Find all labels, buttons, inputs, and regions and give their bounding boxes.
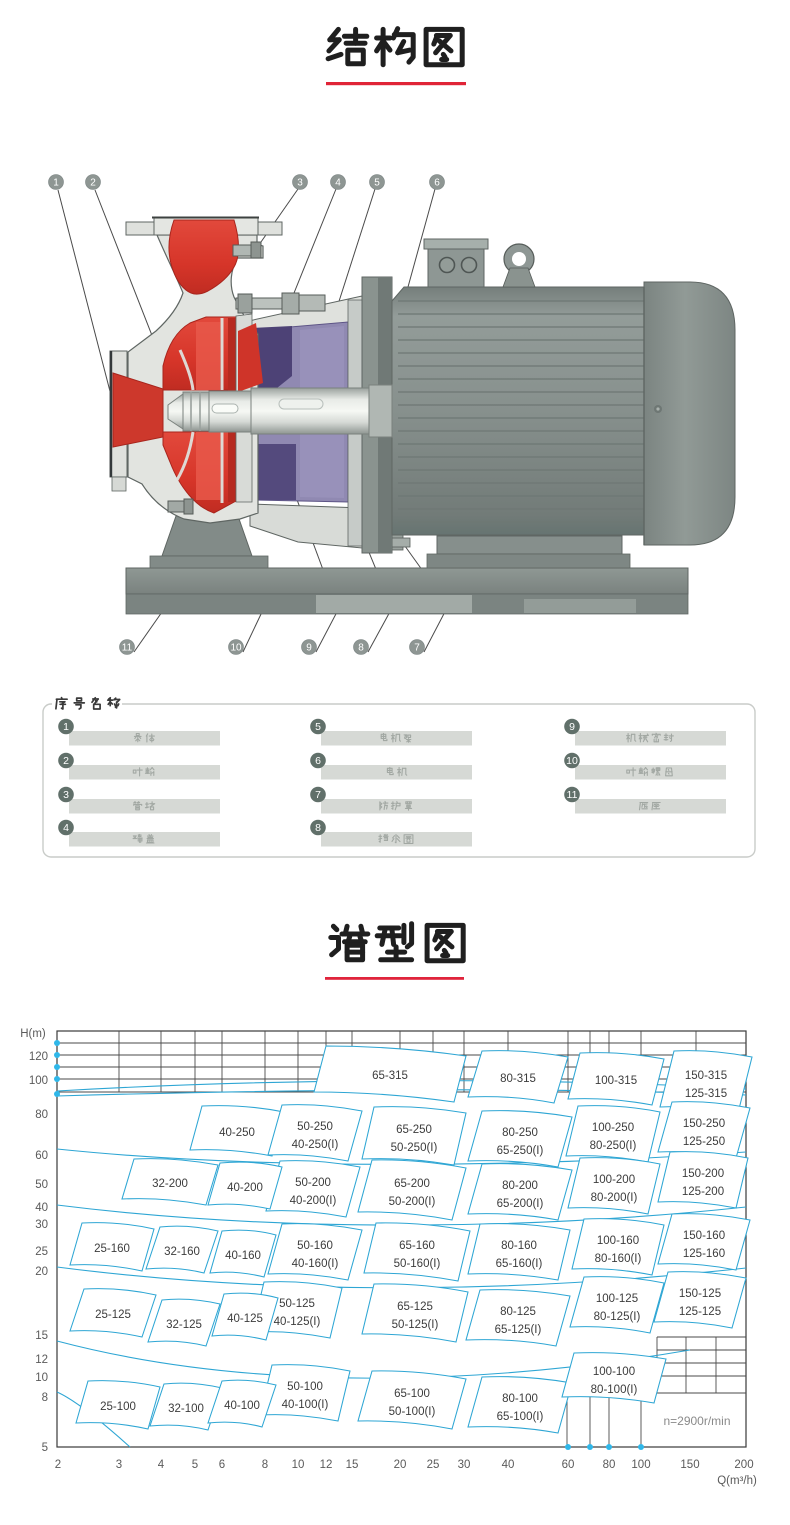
svg-text:40: 40 — [502, 1459, 515, 1471]
svg-text:8: 8 — [262, 1459, 268, 1471]
svg-text:2: 2 — [90, 177, 96, 188]
svg-text:40-250(I): 40-250(I) — [292, 1139, 339, 1151]
svg-text:80-125(I): 80-125(I) — [594, 1311, 641, 1323]
svg-text:25-100: 25-100 — [100, 1401, 136, 1413]
svg-text:60: 60 — [562, 1459, 575, 1471]
svg-text:150-250: 150-250 — [683, 1118, 725, 1130]
svg-text:50-200: 50-200 — [295, 1177, 331, 1189]
svg-text:80-250(I): 80-250(I) — [590, 1140, 637, 1152]
svg-text:80-160: 80-160 — [501, 1240, 537, 1252]
svg-text:10: 10 — [230, 642, 242, 653]
svg-text:40-125: 40-125 — [227, 1313, 263, 1325]
svg-text:8: 8 — [42, 1392, 48, 1404]
svg-text:50-160(I): 50-160(I) — [394, 1258, 441, 1270]
svg-text:50-100: 50-100 — [287, 1381, 323, 1393]
svg-text:100: 100 — [631, 1459, 650, 1471]
svg-text:n=2900r/min: n=2900r/min — [663, 1414, 730, 1428]
svg-text:20: 20 — [394, 1459, 407, 1471]
svg-text:25-160: 25-160 — [94, 1243, 130, 1255]
svg-text:25: 25 — [35, 1246, 48, 1258]
svg-text:125-160: 125-160 — [683, 1248, 725, 1260]
svg-text:6: 6 — [315, 755, 321, 767]
svg-text:1: 1 — [63, 721, 69, 733]
svg-text:50-250(I): 50-250(I) — [391, 1142, 438, 1154]
svg-text:125-315: 125-315 — [685, 1088, 727, 1100]
svg-text:65-200: 65-200 — [394, 1178, 430, 1190]
svg-text:50-125: 50-125 — [279, 1298, 315, 1310]
svg-text:80-315: 80-315 — [500, 1073, 536, 1085]
svg-text:32-125: 32-125 — [166, 1319, 202, 1331]
svg-text:40-160: 40-160 — [225, 1250, 261, 1262]
svg-text:25: 25 — [427, 1459, 440, 1471]
svg-text:50-200(I): 50-200(I) — [389, 1196, 436, 1208]
svg-text:12: 12 — [320, 1459, 333, 1471]
svg-text:12: 12 — [35, 1354, 48, 1366]
svg-text:3: 3 — [116, 1459, 122, 1471]
svg-text:200: 200 — [734, 1459, 753, 1471]
svg-text:40-200(I): 40-200(I) — [290, 1195, 337, 1207]
svg-text:3: 3 — [63, 789, 69, 801]
svg-text:Q(m³/h): Q(m³/h) — [717, 1475, 757, 1487]
svg-text:100-125: 100-125 — [596, 1293, 638, 1305]
svg-text:6: 6 — [434, 177, 440, 188]
svg-text:150-160: 150-160 — [683, 1230, 725, 1242]
svg-text:30: 30 — [458, 1459, 471, 1471]
svg-text:40-125(I): 40-125(I) — [274, 1316, 321, 1328]
svg-text:125-125: 125-125 — [679, 1306, 721, 1318]
svg-text:65-250(I): 65-250(I) — [497, 1145, 544, 1157]
svg-text:40: 40 — [35, 1202, 48, 1214]
svg-text:80: 80 — [35, 1109, 48, 1121]
svg-text:125-250: 125-250 — [683, 1136, 725, 1148]
svg-text:40-250: 40-250 — [219, 1127, 255, 1139]
svg-text:4: 4 — [63, 822, 69, 834]
svg-text:40-200: 40-200 — [227, 1182, 263, 1194]
svg-text:100-100: 100-100 — [593, 1366, 635, 1378]
svg-text:100-315: 100-315 — [595, 1075, 637, 1087]
svg-text:2: 2 — [63, 755, 69, 767]
svg-text:50-125(I): 50-125(I) — [392, 1319, 439, 1331]
svg-text:4: 4 — [335, 177, 341, 188]
svg-text:5: 5 — [192, 1459, 198, 1471]
svg-text:32-100: 32-100 — [168, 1403, 204, 1415]
svg-text:60: 60 — [35, 1150, 48, 1162]
svg-text:11: 11 — [567, 789, 578, 801]
svg-text:8: 8 — [315, 822, 321, 834]
svg-text:5: 5 — [374, 177, 380, 188]
svg-text:50: 50 — [35, 1179, 48, 1191]
svg-text:25-125: 25-125 — [95, 1309, 131, 1321]
svg-text:150-200: 150-200 — [682, 1168, 724, 1180]
svg-text:32-200: 32-200 — [152, 1178, 188, 1190]
svg-text:80-200: 80-200 — [502, 1180, 538, 1192]
svg-text:80: 80 — [603, 1459, 616, 1471]
svg-text:65-125: 65-125 — [397, 1301, 433, 1313]
svg-text:9: 9 — [569, 721, 575, 733]
svg-text:100-250: 100-250 — [592, 1122, 634, 1134]
svg-text:15: 15 — [35, 1330, 48, 1342]
svg-text:125-200: 125-200 — [682, 1186, 724, 1198]
svg-text:10: 10 — [292, 1459, 305, 1471]
svg-text:8: 8 — [358, 642, 364, 653]
svg-text:11: 11 — [122, 642, 133, 653]
svg-text:40-100: 40-100 — [224, 1400, 260, 1412]
svg-text:15: 15 — [346, 1459, 359, 1471]
svg-text:150-125: 150-125 — [679, 1288, 721, 1300]
svg-text:1: 1 — [53, 177, 59, 188]
svg-text:80-250: 80-250 — [502, 1127, 538, 1139]
svg-text:80-125: 80-125 — [500, 1306, 536, 1318]
svg-text:50-100(I): 50-100(I) — [389, 1406, 436, 1418]
svg-text:30: 30 — [35, 1219, 48, 1231]
svg-text:120: 120 — [29, 1051, 48, 1063]
svg-text:50-160: 50-160 — [297, 1240, 333, 1252]
svg-text:10: 10 — [35, 1372, 48, 1384]
svg-text:2: 2 — [55, 1459, 61, 1471]
svg-text:40-100(I): 40-100(I) — [282, 1399, 329, 1411]
svg-text:32-160: 32-160 — [164, 1246, 200, 1258]
svg-text:65-160: 65-160 — [399, 1240, 435, 1252]
svg-text:80-200(I): 80-200(I) — [591, 1192, 638, 1204]
svg-text:65-315: 65-315 — [372, 1070, 408, 1082]
svg-text:3: 3 — [297, 177, 303, 188]
svg-text:H(m): H(m) — [20, 1028, 46, 1040]
svg-text:40-160(I): 40-160(I) — [292, 1258, 339, 1270]
svg-text:10: 10 — [566, 755, 578, 767]
svg-text:20: 20 — [35, 1266, 48, 1278]
svg-text:9: 9 — [306, 642, 312, 653]
svg-text:65-100(I): 65-100(I) — [497, 1411, 544, 1423]
svg-text:65-200(I): 65-200(I) — [497, 1198, 544, 1210]
svg-text:65-250: 65-250 — [396, 1124, 432, 1136]
svg-text:50-250: 50-250 — [297, 1121, 333, 1133]
svg-text:7: 7 — [315, 789, 321, 801]
svg-text:150: 150 — [680, 1459, 699, 1471]
svg-text:80-160(I): 80-160(I) — [595, 1253, 642, 1265]
svg-text:150-315: 150-315 — [685, 1070, 727, 1082]
svg-text:4: 4 — [158, 1459, 165, 1471]
svg-text:6: 6 — [219, 1459, 225, 1471]
svg-text:5: 5 — [315, 721, 321, 733]
svg-text:100-200: 100-200 — [593, 1174, 635, 1186]
svg-text:5: 5 — [42, 1442, 48, 1454]
svg-text:7: 7 — [414, 642, 420, 653]
svg-text:80-100(I): 80-100(I) — [591, 1384, 638, 1396]
svg-text:65-100: 65-100 — [394, 1388, 430, 1400]
svg-text:80-100: 80-100 — [502, 1393, 538, 1405]
svg-text:100: 100 — [29, 1075, 48, 1087]
svg-text:65-125(I): 65-125(I) — [495, 1324, 542, 1336]
svg-text:65-160(I): 65-160(I) — [496, 1258, 543, 1270]
svg-text:100-160: 100-160 — [597, 1235, 639, 1247]
